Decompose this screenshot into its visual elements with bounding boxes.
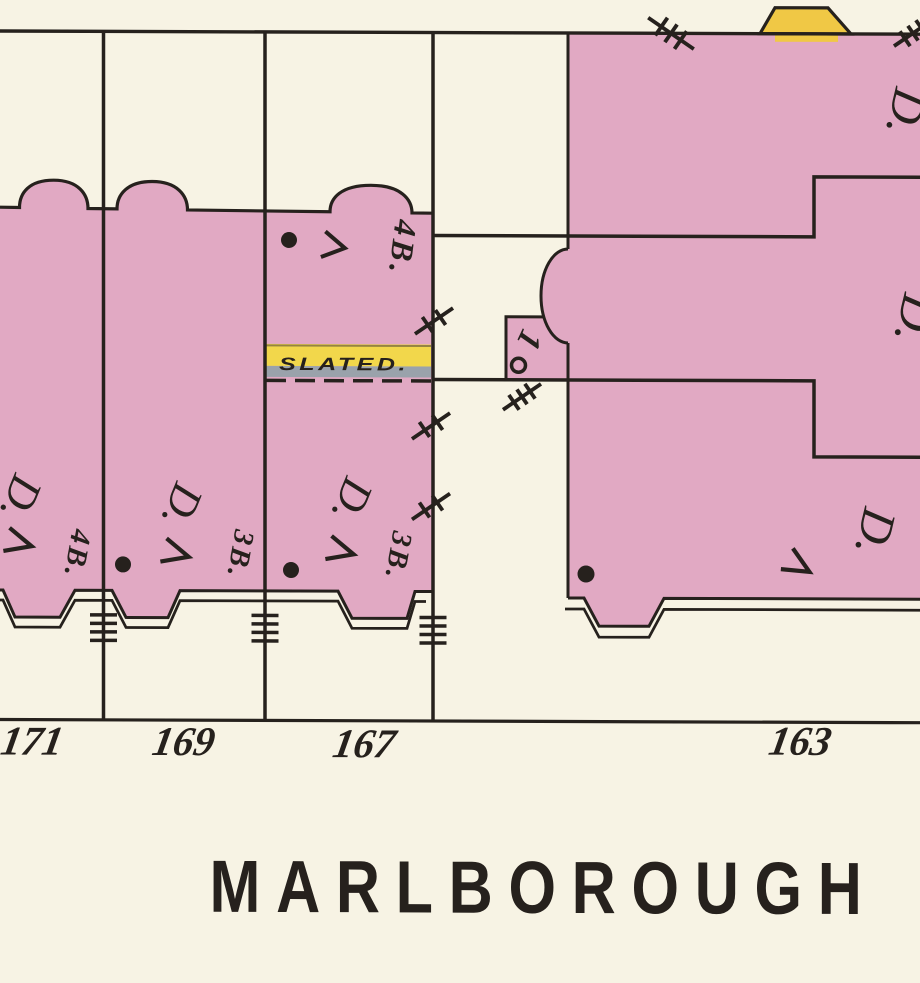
svg-text:163: 163 [766,718,836,764]
svg-text:4B.: 4B. [382,217,425,279]
svg-text:169: 169 [149,718,219,764]
svg-text:171: 171 [0,718,67,764]
svg-text:167: 167 [330,720,402,766]
svg-text:SLATED.: SLATED. [279,354,409,374]
svg-text:MARLBOROUGH: MARLBOROUGH [210,845,878,930]
